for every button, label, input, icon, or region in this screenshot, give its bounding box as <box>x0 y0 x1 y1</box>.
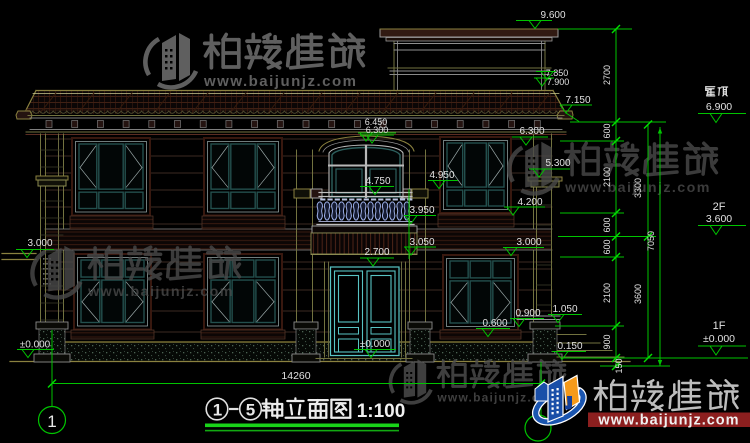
svg-text:www.baijunjz.com: www.baijunjz.com <box>597 413 739 429</box>
svg-text:9.600: 9.600 <box>540 10 565 21</box>
svg-text:7.150: 7.150 <box>565 95 590 106</box>
svg-text:6.300: 6.300 <box>519 126 544 137</box>
svg-text:3.600: 3.600 <box>706 213 732 225</box>
svg-text:3.000: 3.000 <box>27 238 52 249</box>
svg-text:14260: 14260 <box>281 370 310 382</box>
svg-text:1:100: 1:100 <box>357 401 406 422</box>
svg-text:1: 1 <box>47 412 56 431</box>
svg-text:2700: 2700 <box>602 65 612 85</box>
svg-text:4.750: 4.750 <box>365 176 390 187</box>
svg-text:3.950: 3.950 <box>409 205 434 216</box>
svg-text:±0.000: ±0.000 <box>703 333 735 345</box>
svg-text:7.900: 7.900 <box>547 77 570 87</box>
svg-text:3300: 3300 <box>633 178 643 198</box>
svg-text:0.150: 0.150 <box>557 341 582 352</box>
svg-text:1F: 1F <box>713 320 726 332</box>
svg-text:600: 600 <box>602 123 612 138</box>
svg-text:600: 600 <box>602 239 612 254</box>
svg-text:2100: 2100 <box>602 283 612 303</box>
svg-text:4.950: 4.950 <box>429 170 454 181</box>
svg-text:±0.000: ±0.000 <box>20 340 51 351</box>
svg-text:1: 1 <box>213 401 222 420</box>
svg-text:4.200: 4.200 <box>517 197 542 208</box>
svg-text:3.000: 3.000 <box>516 237 541 248</box>
svg-text:2100: 2100 <box>602 167 612 187</box>
svg-text:www.baijunjz.com: www.baijunjz.com <box>87 284 234 300</box>
svg-text:1.050: 1.050 <box>552 304 577 315</box>
svg-text:0.600: 0.600 <box>482 318 507 329</box>
svg-text:600: 600 <box>602 217 612 232</box>
svg-text:0.900: 0.900 <box>515 308 540 319</box>
svg-text:3600: 3600 <box>633 284 643 304</box>
svg-text:5: 5 <box>246 401 255 420</box>
svg-text:2.700: 2.700 <box>364 247 389 258</box>
svg-text:www.baijunjz.com: www.baijunjz.com <box>203 73 357 90</box>
svg-text:3.050: 3.050 <box>409 237 434 248</box>
svg-text:6.900: 6.900 <box>706 101 732 113</box>
svg-text:±0.000: ±0.000 <box>360 339 391 350</box>
svg-text:2F: 2F <box>713 201 726 213</box>
svg-text:900: 900 <box>602 334 612 349</box>
svg-text:7050: 7050 <box>646 231 656 251</box>
svg-text:5.300: 5.300 <box>545 158 570 169</box>
svg-text:150: 150 <box>614 358 624 373</box>
svg-text:6.300: 6.300 <box>366 125 389 135</box>
